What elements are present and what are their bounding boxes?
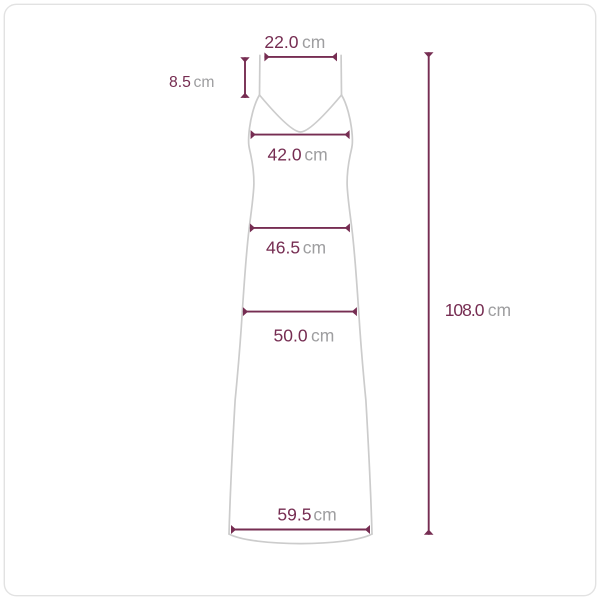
svg-text:cm: cm: [194, 74, 215, 91]
svg-text:cm: cm: [488, 300, 511, 320]
svg-text:cm: cm: [303, 237, 326, 257]
svg-text:cm: cm: [304, 145, 327, 165]
svg-text:42.0: 42.0: [268, 145, 302, 165]
svg-text:50.0: 50.0: [274, 326, 308, 346]
svg-text:8.5: 8.5: [169, 74, 191, 91]
svg-text:cm: cm: [311, 326, 334, 346]
svg-text:46.5: 46.5: [266, 237, 300, 257]
svg-text:cm: cm: [302, 32, 325, 52]
svg-text:cm: cm: [313, 504, 336, 524]
svg-text:108.0: 108.0: [445, 300, 485, 320]
svg-text:59.5: 59.5: [277, 504, 311, 524]
svg-text:22.0: 22.0: [264, 32, 298, 52]
